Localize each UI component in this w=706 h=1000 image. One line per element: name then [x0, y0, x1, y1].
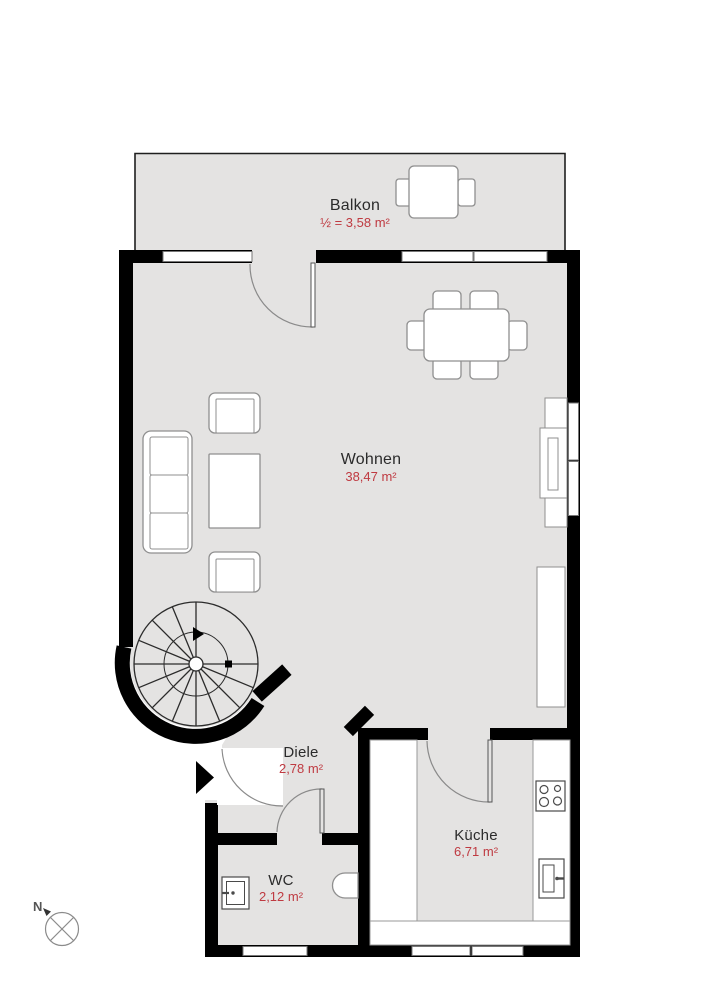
wall-wc-top-left — [211, 833, 277, 845]
wall-wc-left — [205, 803, 218, 951]
spiral-staircase — [134, 602, 258, 726]
stove — [536, 781, 565, 811]
armchair-top-seat — [216, 399, 254, 433]
kitchen-door-leaf — [488, 740, 492, 802]
wc-sink-basin — [227, 882, 245, 905]
dining-chair-6 — [507, 321, 527, 350]
window-kitchen-bottom-2 — [472, 947, 523, 956]
stove-burner-1 — [540, 786, 548, 794]
floor-plan: Balkon ½ = 3,58 m² Wohnen 38,47 m² Diele… — [0, 0, 706, 1000]
sofa-cushion-1 — [150, 437, 188, 475]
toilet — [332, 873, 358, 898]
room-name-kueche: Küche — [454, 827, 498, 844]
dining-table — [424, 309, 509, 361]
radiator-slot — [548, 438, 558, 490]
window-top-3 — [474, 252, 547, 262]
room-area-balkon: ½ = 3,58 m² — [320, 216, 390, 231]
stove-burner-3 — [555, 786, 561, 792]
floor-fills — [126, 153, 574, 951]
room-name-wc: WC — [259, 872, 303, 889]
entrance-arrow-icon — [196, 761, 214, 794]
kitchen-counter-bottom — [370, 921, 570, 945]
room-area-wc: 2,12 m² — [259, 890, 303, 905]
wc-faucet-dot — [231, 891, 234, 894]
window-right-2 — [569, 462, 579, 516]
label-wc: WC 2,12 m² — [259, 872, 303, 905]
stove-burner-2 — [540, 798, 549, 807]
label-balkon: Balkon ½ = 3,58 m² — [320, 197, 390, 231]
balcony-table — [409, 166, 458, 218]
balcony-door-leaf — [311, 263, 315, 327]
wall-kitchen-top-left — [358, 728, 428, 740]
compass-icon — [43, 908, 79, 946]
sofa-cushion-3 — [150, 513, 188, 549]
floor-plan-drawing — [0, 0, 706, 1000]
label-kueche: Küche 6,71 m² — [454, 827, 498, 860]
label-diele: Diele 2,78 m² — [279, 744, 323, 777]
room-name-balkon: Balkon — [320, 197, 390, 215]
window-kitchen-bottom-1 — [412, 947, 470, 956]
kitchen-sink — [539, 859, 564, 898]
kitchen-counter-left — [370, 740, 417, 945]
compass-north-label: N — [33, 899, 42, 914]
room-area-kueche: 6,71 m² — [454, 845, 498, 860]
stove-burner-4 — [554, 797, 562, 805]
window-wc-bottom — [243, 947, 307, 956]
room-area-diele: 2,78 m² — [279, 762, 323, 777]
stair-landing-marker — [225, 661, 232, 668]
wc-door-leaf — [320, 789, 324, 833]
wall-kitchen-top-right — [490, 728, 580, 740]
room-name-wohnen: Wohnen — [341, 451, 402, 469]
armchair-bottom-seat — [216, 559, 254, 592]
coffee-table — [209, 454, 260, 528]
balcony-chair-right — [458, 179, 475, 206]
room-area-wohnen: 38,47 m² — [341, 470, 402, 485]
kitchen-counter-right — [533, 740, 570, 945]
label-wohnen: Wohnen 38,47 m² — [341, 451, 402, 485]
kitchen-sink-inner — [543, 865, 554, 892]
room-name-diele: Diele — [279, 744, 323, 761]
wall-kitchen-left — [358, 736, 370, 951]
window-top-1 — [163, 252, 252, 262]
window-top-2 — [402, 252, 473, 262]
compass-north-arrow-icon — [43, 908, 51, 916]
wall-left — [119, 250, 133, 647]
stair-newel-post — [189, 657, 203, 671]
window-right-1 — [569, 403, 579, 460]
sofa-cushion-2 — [150, 475, 188, 513]
wc-sink — [222, 877, 249, 909]
sideboard — [537, 567, 565, 707]
stove-top — [536, 781, 565, 811]
